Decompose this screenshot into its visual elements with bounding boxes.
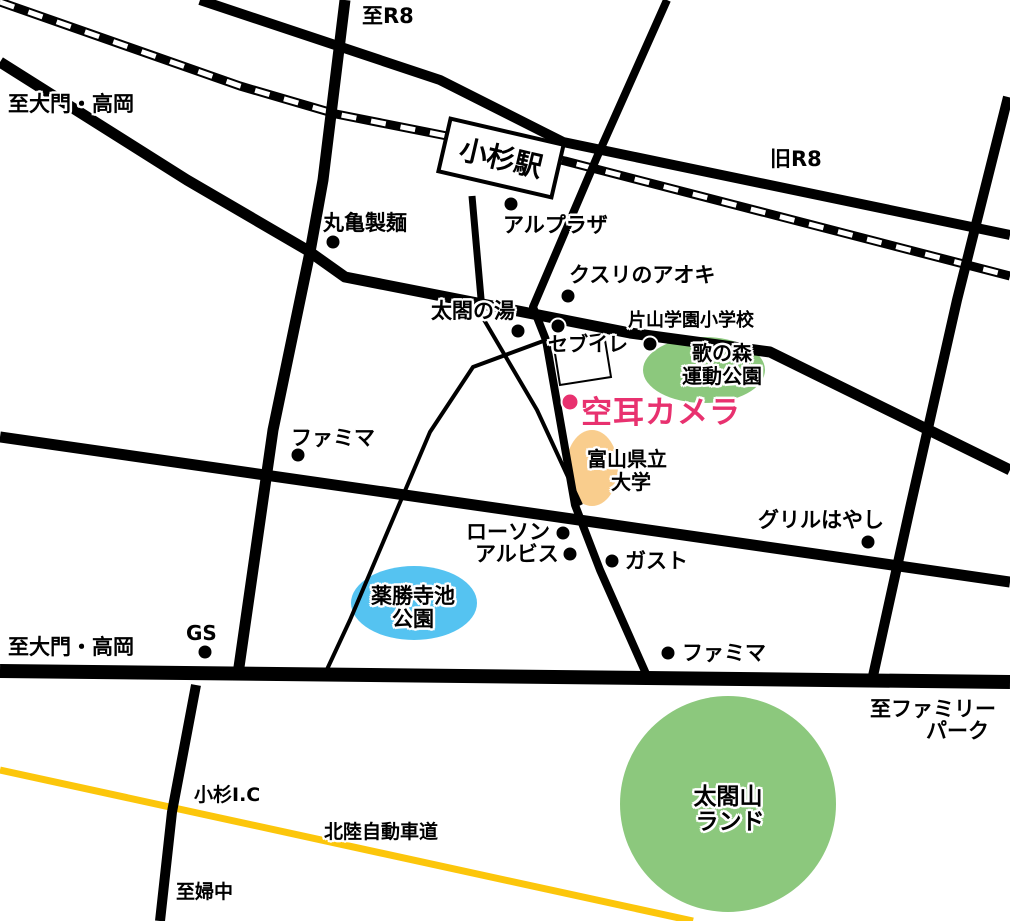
label-taikoyama-line2: ランド bbox=[696, 810, 765, 834]
label-famima-south: ファミマ bbox=[682, 642, 766, 664]
label-utanomori-line1: 歌の森 bbox=[692, 343, 752, 364]
label-taikoyama-line1: 太閤山 bbox=[694, 785, 763, 809]
label-lawson: ローソン bbox=[466, 521, 550, 543]
label-university-line1: 富山県立 bbox=[587, 449, 667, 470]
label-famima-west: ファミマ bbox=[291, 427, 375, 449]
label-grill-hayashi: グリルはやし bbox=[758, 509, 884, 531]
kusuri-no-aoki-dot bbox=[561, 289, 576, 304]
label-al-plaza: アルプラザ bbox=[503, 214, 608, 236]
access-map: 小杉駅 至R8 至大門・高岡 旧R8 丸亀製麺 アルプラザ クスリのアオキ 太閤… bbox=[0, 0, 1010, 921]
label-university-line2: 大学 bbox=[611, 472, 651, 493]
label-kosugi-ic: 小杉I.C bbox=[194, 786, 260, 806]
label-family-park-line1: 至ファミリー bbox=[870, 698, 996, 720]
lawson-dot bbox=[556, 526, 571, 541]
katayama-school-dot bbox=[643, 337, 658, 352]
gs-dot bbox=[198, 645, 213, 660]
famima-south-dot bbox=[661, 646, 676, 661]
gusto-dot bbox=[605, 554, 620, 569]
label-seven-eleven: セブイレ bbox=[548, 334, 628, 355]
marugame-dot bbox=[326, 235, 341, 250]
map-canvas: 小杉駅 bbox=[0, 0, 1010, 921]
label-gusto: ガスト bbox=[625, 550, 688, 572]
label-to-r8: 至R8 bbox=[362, 5, 414, 27]
label-marugame: 丸亀製麺 bbox=[323, 212, 407, 234]
label-yakushoji-line2: 公園 bbox=[392, 608, 434, 630]
label-albis: アルビス bbox=[475, 543, 559, 565]
label-to-daimon-top: 至大門・高岡 bbox=[8, 93, 134, 115]
destination-label: 空耳カメラ bbox=[581, 397, 741, 430]
grill-hayashi-dot bbox=[861, 535, 876, 550]
label-old-r8: 旧R8 bbox=[770, 148, 822, 170]
albis-dot bbox=[563, 547, 578, 562]
label-gs: GS bbox=[186, 623, 217, 644]
label-yakushoji-line1: 薬勝寺池 bbox=[371, 585, 455, 607]
label-taiko-no-yu: 太閤の湯 bbox=[431, 300, 515, 322]
al-plaza-dot bbox=[504, 197, 519, 212]
label-to-fuchu: 至婦中 bbox=[176, 883, 233, 903]
label-family-park-line2: パーク bbox=[926, 720, 989, 742]
label-utanomori-line2: 運動公園 bbox=[682, 366, 762, 387]
label-hokuriku-expwy: 北陸自動車道 bbox=[324, 823, 438, 843]
destination-dot bbox=[562, 394, 579, 411]
label-katayama-school: 片山学園小学校 bbox=[628, 312, 754, 331]
label-kusuri-no-aoki: クスリのアオキ bbox=[569, 264, 715, 286]
taiko-no-yu-dot bbox=[511, 324, 526, 339]
label-to-daimon-bottom: 至大門・高岡 bbox=[8, 636, 134, 658]
